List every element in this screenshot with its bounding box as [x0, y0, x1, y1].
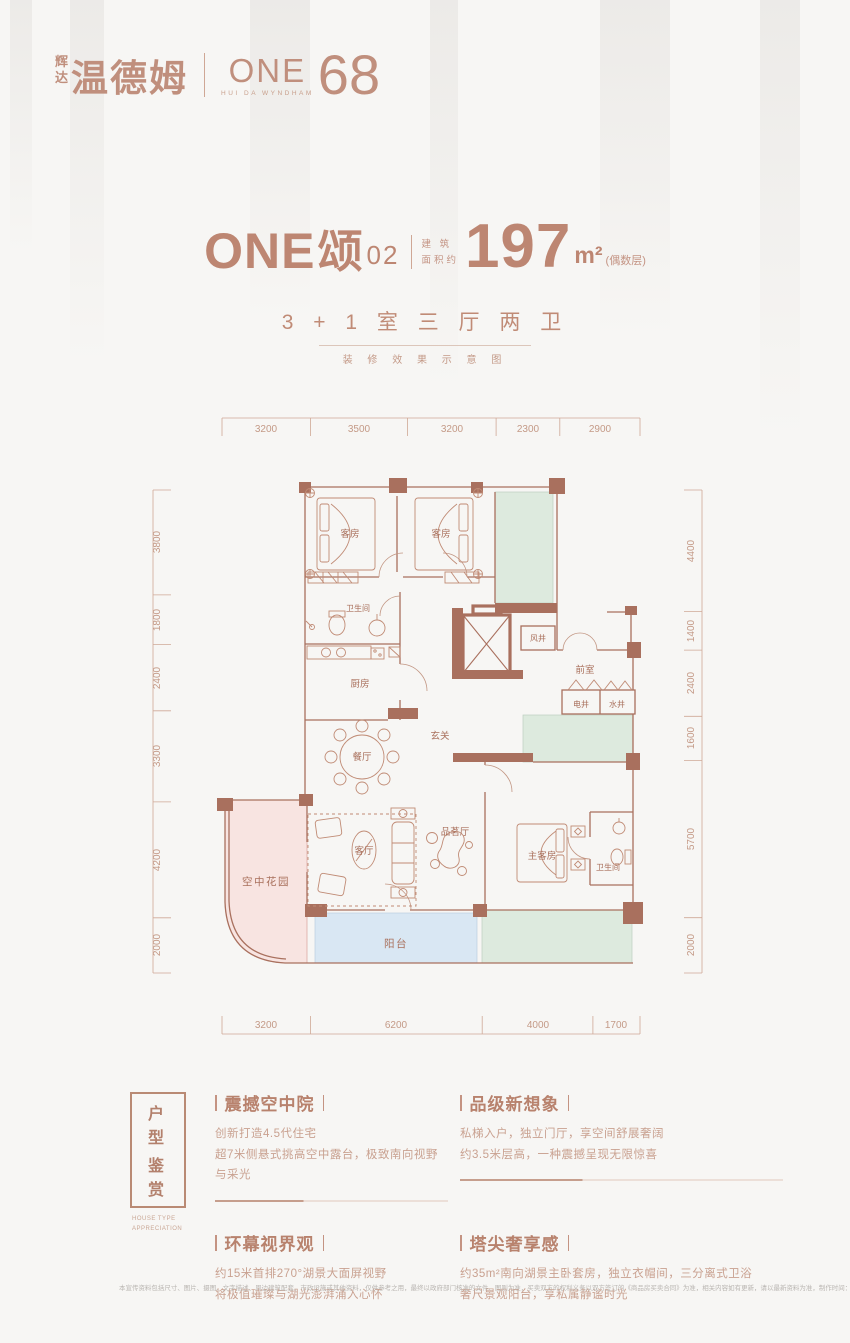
dimension-label: 4200: [152, 848, 163, 871]
room-label-kitchen: 厨房: [350, 678, 369, 690]
dimension-label: 2300: [517, 424, 540, 435]
appreciation-badge: 户 型 鉴 赏 HOUSE TYPE APPRECIATION: [130, 1092, 186, 1234]
floorplan-poster: 辉 达 温德姆 ONE HUI DA WYNDHAM 68 ONE 颂 02 建…: [0, 0, 850, 1343]
dimension-label: 3300: [152, 744, 163, 767]
unit-title: ONE 颂 02 建 筑 面积约 197 m² (偶数层): [0, 222, 850, 273]
dimension-label: 5700: [686, 827, 697, 850]
logo-one-text: ONE: [229, 54, 307, 87]
room-label-water-shaft: 水井: [609, 699, 625, 709]
room-label-tea-room: 品茗厅: [441, 827, 470, 838]
brand-name-large: 温德姆: [71, 48, 188, 102]
title-divider: [411, 235, 412, 269]
dimension-label: 1800: [152, 608, 163, 631]
green-area-bottom: [482, 910, 632, 963]
area-label: 建 筑 面积约: [421, 237, 459, 267]
elevator: [463, 606, 510, 673]
logo-number: 68: [318, 53, 380, 98]
dimension-label: 2400: [152, 666, 163, 689]
dimension-label: 3200: [255, 424, 278, 435]
room-label-guest2: 客房: [431, 528, 450, 540]
feature-title-text: 品级新想象: [470, 1090, 560, 1115]
furniture: [306, 489, 633, 907]
caption-divider: [319, 345, 531, 346]
room-label-bath-upper: 卫生间: [346, 603, 370, 613]
dimension-label: 3500: [348, 424, 371, 435]
dimension-ruler-bottom: 3200 6200 4000 1700: [222, 1016, 640, 1034]
feature-title: 震撼空中院: [215, 1090, 448, 1115]
title-unit-number: 02: [367, 240, 400, 271]
enclosed-balcony-area-top: [495, 492, 553, 603]
feature-line: 约35m²南向湖景主卧套房，独立衣帽间，三分离式卫浴: [460, 1264, 783, 1285]
brand-char-2: 达: [55, 70, 68, 86]
feature-divider: [215, 1200, 448, 1202]
render-caption: 装 修 效 果 示 意 图: [0, 351, 850, 366]
feature-body: 私梯入户，独立门厅，享空间舒展奢阔 约3.5米层高，一种震撼呈现无限惊喜: [460, 1124, 783, 1165]
dimension-ruler-right: 4400 1400 2400 1600 5700 2000: [684, 490, 702, 973]
area-note: (偶数层): [606, 252, 646, 268]
dimension-label: 2400: [686, 671, 697, 694]
area-label-top: 建 筑: [421, 237, 459, 252]
badge-subtitle: HOUSE TYPE APPRECIATION: [130, 1214, 186, 1234]
feature-luxury-suite: 塔尖奢享感 约35m²南向湖景主卧套房，独立衣帽间，三分离式卫浴 奢尺景观阳台，…: [460, 1230, 795, 1305]
feature-title-text: 环幕视界观: [225, 1230, 315, 1255]
dimension-label: 3200: [255, 1020, 278, 1031]
feature-sky-courtyard: 震撼空中院 创新打造4.5代住宅 超7米侧悬式挑高空中露台，极致南向视野与采光: [215, 1090, 460, 1202]
feature-title: 品级新想象: [460, 1090, 783, 1115]
dimension-label: 2900: [589, 424, 612, 435]
dimension-ruler-top: 3200 3500 3200 2300 2900: [222, 418, 640, 436]
title-bar-decoration: [568, 1095, 570, 1111]
room-label-bath-lower: 卫生间: [596, 862, 620, 872]
dimension-label: 1400: [686, 619, 697, 642]
dimension-label: 1700: [605, 1020, 628, 1031]
room-label-balcony: 阳台: [384, 937, 408, 950]
room-label-master: 主客房: [528, 850, 557, 862]
dimension-label: 1600: [686, 726, 697, 749]
badge-row-2: 鉴 赏: [136, 1152, 180, 1200]
floorplan-drawing: 3200 3500 3200 2300 2900 3200 6200 4000 …: [145, 412, 710, 1052]
badge-subtitle-line2: APPRECIATION: [132, 1224, 186, 1234]
logo-caption: HUI DA WYNDHAM: [221, 90, 314, 97]
brand-name-small: 辉 达: [55, 54, 68, 85]
brand-logo: ONE HUI DA WYNDHAM 68: [221, 53, 380, 98]
title-cn: 颂: [318, 232, 363, 273]
feature-divider: [460, 1179, 783, 1181]
feature-line: 私梯入户，独立门厅，享空间舒展奢阔: [460, 1124, 783, 1145]
feature-title-text: 塔尖奢享感: [470, 1230, 560, 1255]
dimension-label: 2000: [686, 933, 697, 956]
feature-line: 约15米首排270°湖景大面屏视野: [215, 1264, 448, 1285]
brand-chinese: 辉 达 温德姆: [55, 48, 188, 102]
feature-title: 环幕视界观: [215, 1230, 448, 1255]
feature-title-text: 震撼空中院: [225, 1090, 315, 1115]
brand-char-1: 辉: [55, 54, 68, 70]
title-bar-decoration: [323, 1095, 325, 1111]
room-label-electric-shaft: 电井: [573, 699, 589, 709]
dimension-label: 2000: [152, 933, 163, 956]
feature-title: 塔尖奢享感: [460, 1230, 783, 1255]
background-streak: [600, 0, 670, 400]
title-bar-decoration: [215, 1095, 217, 1111]
room-label-air-shaft: 风井: [530, 633, 546, 643]
dimension-label: 4400: [686, 539, 697, 562]
title-prefix: ONE: [204, 230, 315, 273]
room-label-living: 客厅: [354, 845, 374, 857]
area-label-bottom: 面积约: [421, 253, 459, 268]
feature-panorama-view: 环幕视界观 约15米首排270°湖景大面屏视野 将极值璀璨与湖光澎湃涌入心怀: [215, 1230, 460, 1305]
title-bar-decoration: [568, 1235, 570, 1251]
feature-line: 约3.5米层高，一种震撼呈现无限惊喜: [460, 1145, 783, 1166]
title-bar-decoration: [323, 1235, 325, 1251]
brand-header: 辉 达 温德姆 ONE HUI DA WYNDHAM 68: [55, 48, 380, 102]
dimension-label: 3200: [441, 424, 464, 435]
room-label-sky-garden: 空中花园: [242, 875, 290, 888]
area-value: 197: [465, 222, 571, 273]
green-area-middle: [523, 715, 633, 762]
colored-areas: [225, 492, 633, 963]
dimension-label: 4000: [527, 1020, 550, 1031]
feature-list: 震撼空中院 创新打造4.5代住宅 超7米侧悬式挑高空中露台，极致南向视野与采光 …: [215, 1090, 795, 1305]
dimension-label: 6200: [385, 1020, 408, 1031]
room-label-foyer: 玄关: [430, 730, 450, 742]
title-bar-decoration: [460, 1235, 462, 1251]
badge-row-1: 户 型: [136, 1100, 180, 1148]
feature-line: 超7米侧悬式挑高空中露台，极致南向视野与采光: [215, 1145, 448, 1186]
dimension-ruler-left: 3800 1800 2400 3300 4200 2000: [152, 490, 171, 973]
feature-grade-imagination: 品级新想象 私梯入户，独立门厅，享空间舒展奢阔 约3.5米层高，一种震撼呈现无限…: [460, 1090, 795, 1202]
room-label-front-room: 前室: [575, 664, 594, 676]
room-label-guest1: 客房: [340, 528, 359, 540]
title-bar-decoration: [460, 1095, 462, 1111]
appreciation-badge-box: 户 型 鉴 赏: [130, 1092, 186, 1208]
layout-subtitle: 3 + 1 室 三 厅 两 卫: [0, 306, 850, 336]
dimension-label: 3800: [152, 530, 163, 553]
feature-line: 创新打造4.5代住宅: [215, 1124, 448, 1145]
area-unit: m²: [574, 242, 602, 269]
title-bar-decoration: [215, 1235, 217, 1251]
feature-body: 创新打造4.5代住宅 超7米侧悬式挑高空中露台，极致南向视野与采光: [215, 1124, 448, 1186]
disclaimer-text: 本宣传资料包括尺寸、图片、摄图、文字描述、周边建筑配套、市政设施或其他资料，仅供…: [119, 1283, 731, 1292]
brand-divider: [204, 53, 205, 97]
badge-subtitle-line1: HOUSE TYPE: [132, 1214, 186, 1224]
room-label-dining: 餐厅: [352, 751, 372, 763]
